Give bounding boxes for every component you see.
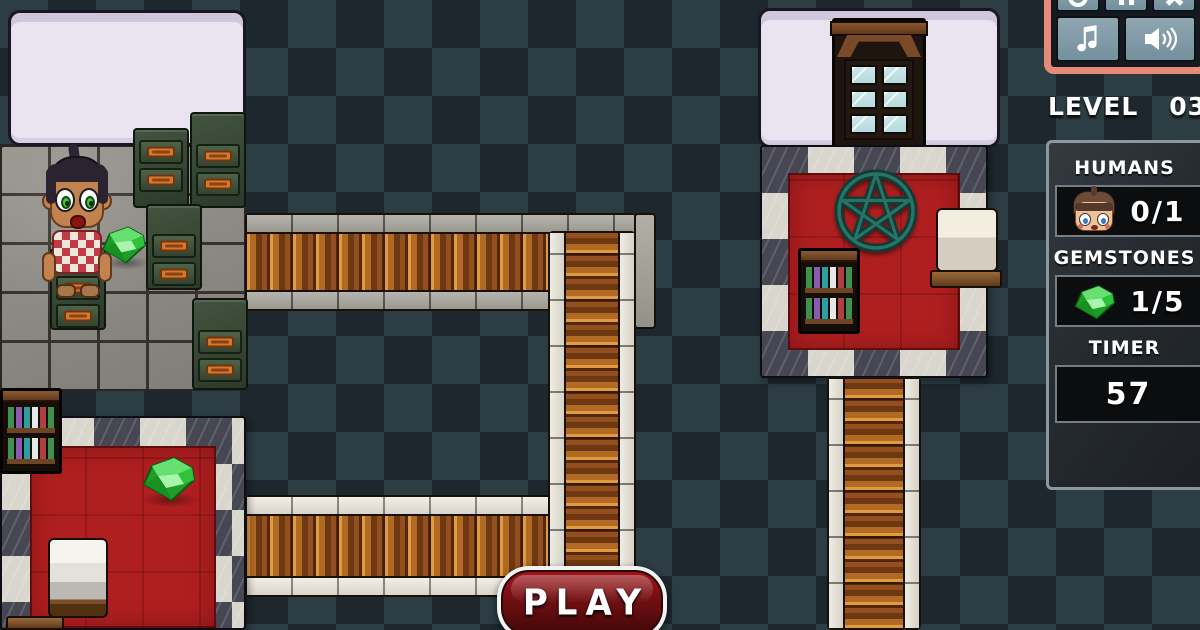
music-toggle-button[interactable] xyxy=(1056,16,1120,62)
close-icon xyxy=(1165,0,1183,6)
play-button-face: PLAY xyxy=(501,570,663,630)
restart-button[interactable] xyxy=(1056,0,1100,12)
filing-cabinet xyxy=(190,112,246,208)
book-spines xyxy=(806,267,852,288)
filing-cabinet xyxy=(133,128,189,208)
bookshelf-top-peek xyxy=(6,616,64,630)
character-eye xyxy=(55,188,75,212)
sound-toggle-button[interactable] xyxy=(1124,16,1196,62)
glass-door xyxy=(832,18,926,150)
cabinet-drawer xyxy=(56,304,100,328)
control-button-frame xyxy=(1044,0,1200,74)
humans-counter: 0/1 xyxy=(1055,185,1200,237)
drawer-handle-icon xyxy=(64,311,92,322)
book-spines xyxy=(8,407,54,428)
humans-title: HUMANS xyxy=(1049,157,1200,179)
character-checkered-bib xyxy=(52,230,102,274)
cabinet-drawer xyxy=(196,144,240,168)
cabinet-drawer xyxy=(152,234,196,258)
marble-table xyxy=(936,208,998,272)
human-character xyxy=(42,148,112,300)
game-screen: LEVEL 03 HUMANS 0/1 GEMSTONES 1/5 xyxy=(0,0,1200,630)
pentagram-symbol xyxy=(832,167,920,255)
control-row-bottom xyxy=(1056,16,1196,62)
level-label: LEVEL xyxy=(1048,92,1138,121)
character-sideburn xyxy=(98,168,108,204)
book-spines xyxy=(806,298,852,319)
gemstones-value: 1/5 xyxy=(1130,285,1185,318)
restart-icon xyxy=(1068,0,1088,7)
shelf-row xyxy=(7,436,55,464)
book-spines xyxy=(8,438,54,459)
bookshelf xyxy=(0,388,62,474)
pause-icon xyxy=(1119,0,1134,5)
drawer-handle-icon xyxy=(147,175,175,186)
play-button[interactable]: PLAY xyxy=(497,566,667,630)
timer-box: 57 xyxy=(1055,365,1200,423)
door-lintel xyxy=(830,21,928,36)
marble-table-base xyxy=(930,270,1002,288)
door-arch xyxy=(837,35,921,57)
cabinet-drawer xyxy=(152,262,196,286)
cabinet-drawer xyxy=(196,172,240,196)
filing-cabinet xyxy=(192,298,248,390)
bookshelf xyxy=(798,248,860,334)
shelf-row xyxy=(805,296,853,324)
drawer-handle-icon xyxy=(160,241,188,252)
character-mouth xyxy=(70,215,86,229)
shelf-row xyxy=(7,405,55,433)
stone-edge-piece xyxy=(634,213,656,329)
music-note-icon xyxy=(1075,23,1101,55)
door-glass-panes xyxy=(844,59,914,140)
drawer-handle-icon xyxy=(160,269,188,280)
level-indicator: LEVEL 03 xyxy=(1048,92,1200,121)
gemstones-counter: 1/5 xyxy=(1055,275,1200,327)
shelf-row xyxy=(805,265,853,293)
character-foot xyxy=(80,284,100,298)
gemstone xyxy=(138,454,198,502)
timer-value: 57 xyxy=(1106,377,1152,412)
drawer-handle-icon xyxy=(206,337,234,348)
character-arm xyxy=(98,252,112,282)
marble-block xyxy=(48,538,108,618)
control-row-top xyxy=(1056,0,1196,12)
cabinet-drawer xyxy=(198,358,242,382)
cabinet-drawer xyxy=(198,330,242,354)
gemstone-icon xyxy=(1071,283,1117,320)
human-face-icon xyxy=(1071,189,1117,233)
drawer-handle-icon xyxy=(206,365,234,376)
hud-panel: HUMANS 0/1 GEMSTONES 1/5 TIMER xyxy=(1046,140,1200,490)
drawer-handle-icon xyxy=(204,179,232,190)
timer-title: TIMER xyxy=(1049,337,1200,359)
pause-button[interactable] xyxy=(1104,0,1148,12)
speaker-icon xyxy=(1143,26,1177,52)
play-button-label: PLAY xyxy=(515,582,649,624)
wooden-walkway-vertical xyxy=(548,231,636,577)
character-eye xyxy=(79,188,99,212)
character-foot xyxy=(56,284,76,298)
drawer-handle-icon xyxy=(204,151,232,162)
drawer-handle-icon xyxy=(147,147,175,158)
humans-value: 0/1 xyxy=(1130,195,1185,228)
gemstones-title: GEMSTONES xyxy=(1049,247,1200,269)
cabinet-drawer xyxy=(139,168,183,192)
cabinet-drawer xyxy=(139,140,183,164)
close-button[interactable] xyxy=(1152,0,1196,12)
filing-cabinet xyxy=(146,204,202,290)
level-value: 03 xyxy=(1169,92,1200,121)
character-arm xyxy=(42,252,56,282)
wooden-walkway-below-ritual-room xyxy=(827,377,921,630)
